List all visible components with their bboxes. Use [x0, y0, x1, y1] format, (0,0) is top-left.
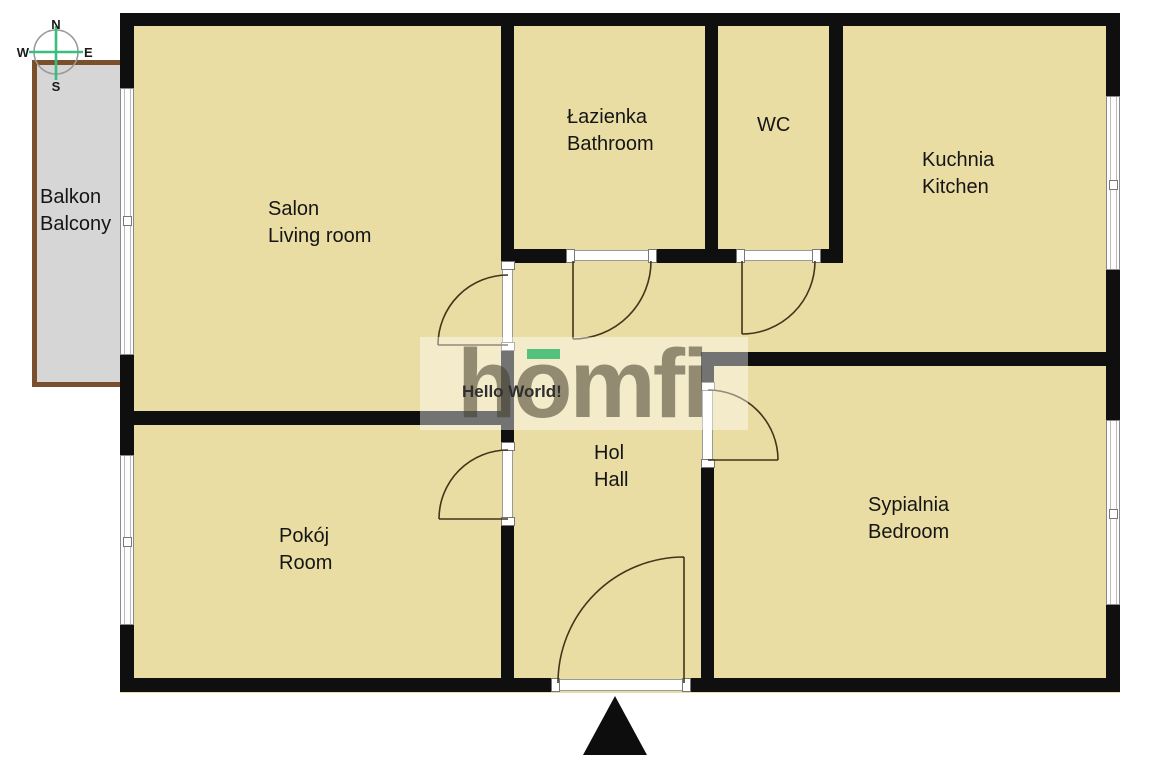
balcony-label: Balkon Balcony — [40, 184, 111, 238]
kitchen-label-pl: Kuchnia — [922, 147, 994, 174]
compass-north-label: N — [51, 17, 60, 32]
bedroom-label-pl: Sypialnia — [868, 492, 949, 519]
wc-label-pl: WC — [757, 112, 790, 139]
living-room-label: Salon Living room — [268, 196, 371, 250]
living-room-label-en: Living room — [268, 223, 371, 250]
living-room-label-pl: Salon — [268, 196, 371, 223]
hall-label-en: Hall — [594, 467, 628, 494]
watermark-overlay-text: Hello World! — [462, 382, 562, 402]
room-label: Pokój Room — [279, 523, 332, 577]
wc-door-arc — [742, 261, 815, 334]
entrance-door-arc — [558, 557, 684, 683]
compass-west-label: W — [17, 45, 30, 60]
hall-label-pl: Hol — [594, 440, 628, 467]
compass-south-label: S — [52, 79, 61, 94]
bedroom-label-en: Bedroom — [868, 519, 949, 546]
compass-east-label: E — [84, 45, 93, 60]
balcony-label-pl: Balkon — [40, 184, 111, 211]
bathroom-label-pl: Łazienka — [567, 104, 654, 131]
room-label-pl: Pokój — [279, 523, 332, 550]
homfi-logo-accent-bar — [527, 349, 560, 359]
room-door-arc — [439, 450, 508, 519]
entrance-triangle-icon — [583, 696, 647, 755]
kitchen-label: Kuchnia Kitchen — [922, 147, 994, 201]
bathroom-label-en: Bathroom — [567, 131, 654, 158]
compass-icon: N S W E — [17, 17, 93, 94]
bathroom-label: Łazienka Bathroom — [567, 104, 654, 158]
floor-plan: N S W E homfi Hello World! Balkon Balcon… — [0, 0, 1166, 762]
wc-label: WC — [757, 112, 790, 139]
bathroom-door-arc — [573, 261, 651, 339]
bedroom-label: Sypialnia Bedroom — [868, 492, 949, 546]
kitchen-label-en: Kitchen — [922, 174, 994, 201]
hall-label: Hol Hall — [594, 440, 628, 494]
room-label-en: Room — [279, 550, 332, 577]
balcony-label-en: Balcony — [40, 211, 111, 238]
